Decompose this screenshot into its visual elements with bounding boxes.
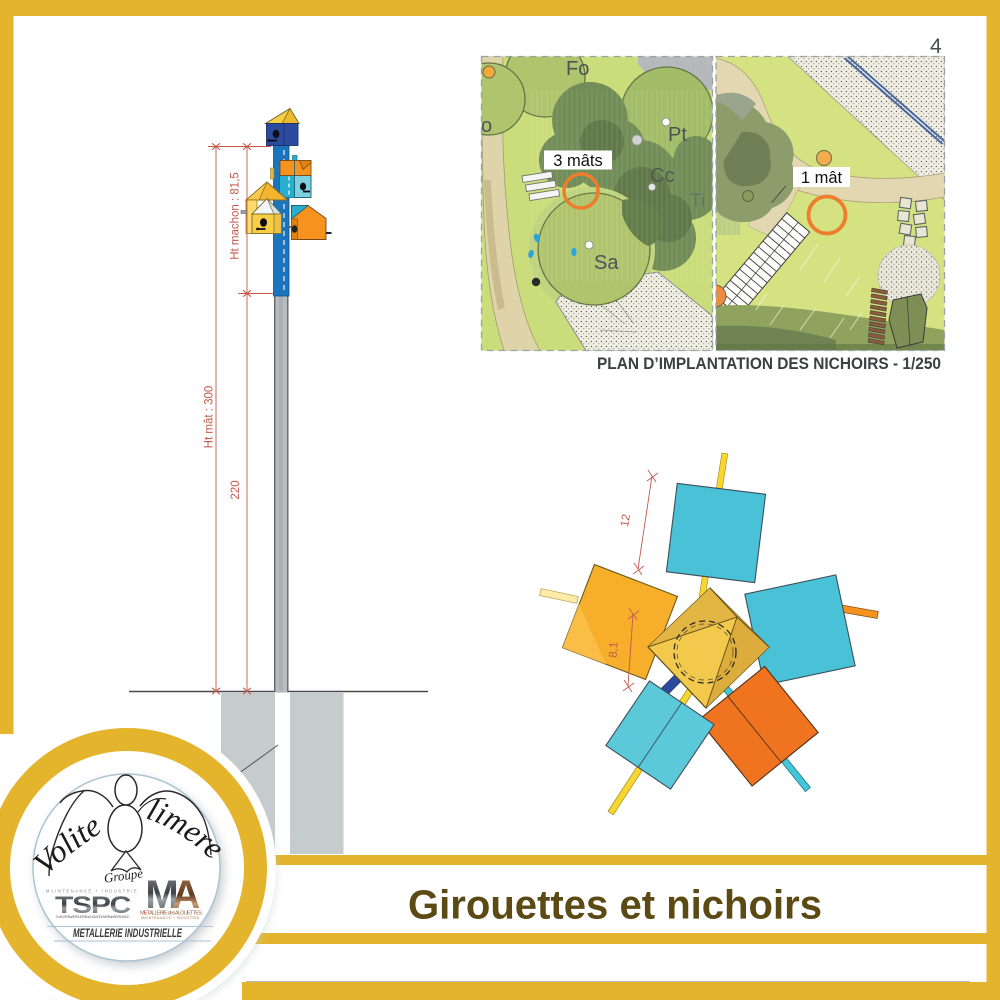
svg-text:8,1: 8,1 — [607, 641, 620, 658]
svg-text:1 mât: 1 mât — [801, 169, 843, 187]
svg-text:3 mâts: 3 mâts — [553, 152, 603, 170]
svg-text:TUYAUTERIE●SERRURERIE●CHAUDRON: TUYAUTERIE●SERRURERIE●CHAUDRONNERIE●MAIN… — [56, 915, 131, 919]
svg-text:PLAN D’IMPLANTATION DES NICHOI: PLAN D’IMPLANTATION DES NICHOIRS - 1/250 — [597, 355, 941, 373]
svg-text:Pt: Pt — [668, 124, 687, 146]
svg-text:Ht machon : 81,5: Ht machon : 81,5 — [230, 172, 242, 260]
svg-text:Girouettes et nichoirs: Girouettes et nichoirs — [408, 882, 822, 928]
svg-text:Fo: Fo — [566, 58, 589, 80]
svg-text:220: 220 — [230, 480, 242, 499]
svg-text:Cc: Cc — [650, 165, 674, 187]
svg-text:Ti: Ti — [690, 191, 705, 212]
svg-text:Sa: Sa — [594, 252, 619, 274]
svg-text:MAINTENANCE + INDUSTRIE: MAINTENANCE + INDUSTRIE — [141, 916, 200, 920]
svg-text:o: o — [481, 115, 492, 137]
svg-text:12: 12 — [619, 513, 633, 528]
svg-text:METALLERIE INDUSTRIELLE: METALLERIE INDUSTRIELLE — [73, 928, 182, 940]
svg-text:Ht mât : 300: Ht mât : 300 — [204, 386, 216, 449]
svg-text:4: 4 — [930, 35, 942, 58]
